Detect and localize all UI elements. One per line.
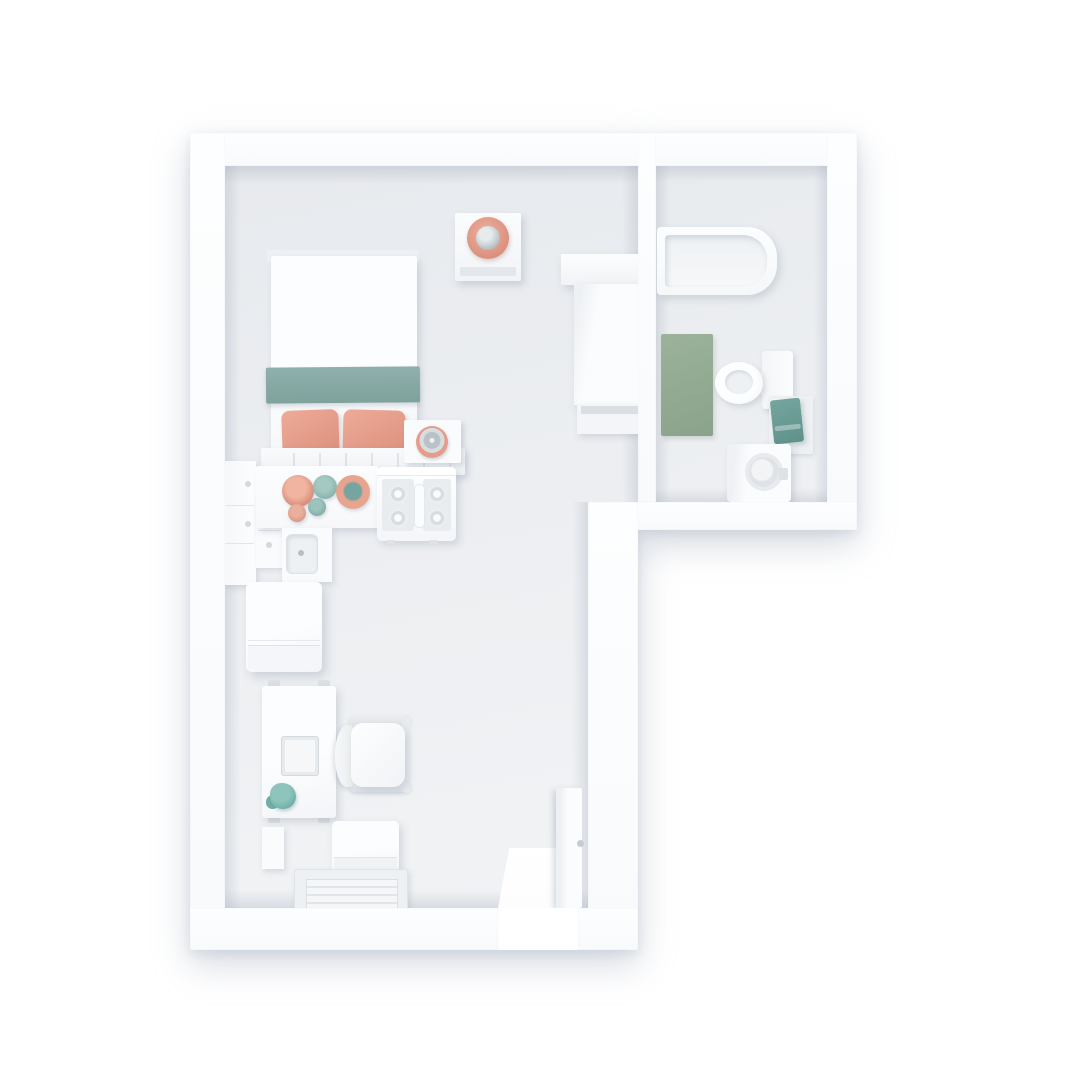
- towel-teal: [770, 398, 804, 445]
- stove-burner: [427, 508, 447, 528]
- kitchen-wall-cabinet: [223, 461, 256, 585]
- entry-door-open: [556, 788, 582, 908]
- wall-partition-bathroom: [638, 133, 656, 502]
- wall-bottom-right-segment: [578, 908, 638, 950]
- small-wall-shelf: [262, 827, 284, 869]
- drawer-knob: [266, 542, 272, 548]
- cabinet-knob: [245, 481, 251, 487]
- laptop: [281, 736, 319, 776]
- bowl-salmon-with-teal-center: [336, 475, 370, 509]
- wardrobe: [574, 284, 646, 405]
- stove-burner: [388, 508, 408, 528]
- bowl-teal: [313, 475, 337, 499]
- bathtub: [657, 227, 777, 295]
- ottoman: [332, 821, 399, 872]
- sink-drain: [298, 550, 304, 556]
- chair-seat: [351, 723, 405, 787]
- wardrobe-open-shelf: [577, 404, 643, 434]
- stove-burner: [388, 484, 408, 504]
- fridge-front-face: [248, 645, 320, 670]
- washing-machine: [727, 444, 791, 502]
- washing-machine-handle: [779, 468, 788, 480]
- drawer-divider: [258, 530, 280, 531]
- wall-right-bathroom: [827, 133, 857, 530]
- cabinet-knob: [245, 521, 251, 527]
- stove-back-rim: [377, 467, 456, 476]
- cabinet-divider: [225, 543, 254, 544]
- wardrobe-top-shelf: [561, 254, 646, 285]
- bathtub-basin: [665, 235, 767, 287]
- laptop-screen: [285, 740, 315, 772]
- doorway-opening: [498, 908, 578, 950]
- washing-machine-door: [745, 453, 783, 491]
- floor-plan-canvas: [0, 0, 1080, 1080]
- wall-left: [190, 133, 225, 950]
- wall-main-right: [588, 502, 638, 950]
- toilet-bowl: [715, 362, 763, 404]
- wall-bottom-left-segment: [190, 908, 498, 950]
- fridge: [246, 582, 322, 672]
- fridge-door-seam: [248, 640, 320, 641]
- table-lamp-metal-core: [476, 226, 500, 250]
- nightstand-drawer: [460, 267, 516, 276]
- bed-teal-runner: [266, 366, 420, 403]
- bowl-teal-small: [308, 498, 326, 516]
- kitchen-sink-unit: [282, 528, 332, 582]
- toilet-bowl-inner: [725, 370, 753, 394]
- door-handle: [577, 840, 584, 847]
- bath-mat-sage: [661, 334, 713, 436]
- towel-fold: [774, 424, 800, 432]
- stove-knobs: [387, 540, 446, 544]
- stove-center-strip: [414, 484, 425, 528]
- wardrobe-shelf-slot: [581, 406, 639, 414]
- cabinet-divider: [225, 505, 254, 506]
- wall-top: [190, 133, 857, 166]
- gas-stove: [377, 467, 456, 541]
- bowl-salmon-small: [288, 504, 306, 522]
- desk-plant: [270, 783, 296, 809]
- stove-burner: [427, 484, 447, 504]
- bedside-clock: [416, 426, 448, 458]
